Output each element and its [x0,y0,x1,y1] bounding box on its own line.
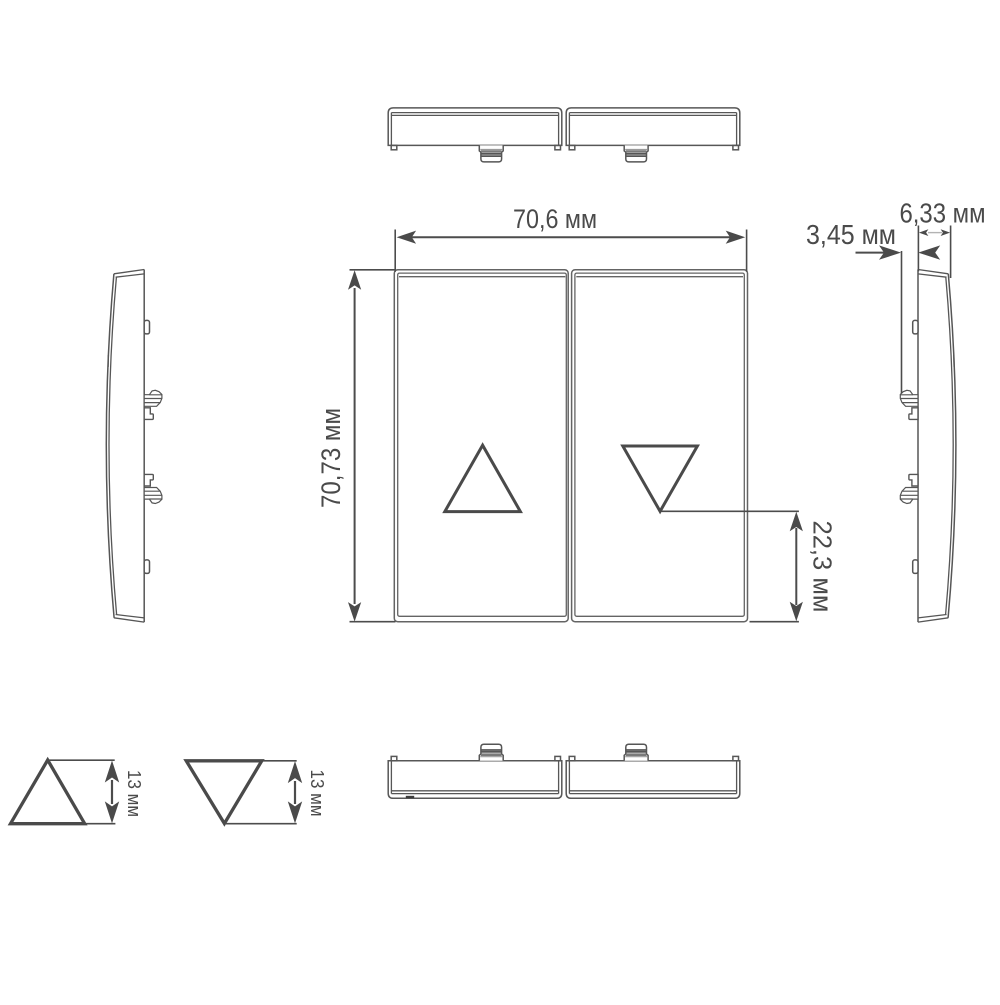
svg-text:13 мм: 13 мм [124,770,145,817]
svg-text:22,3 мм: 22,3 мм [807,521,835,613]
svg-text:6,33 мм: 6,33 мм [900,198,986,229]
svg-text:70,73 мм: 70,73 мм [316,408,346,508]
svg-text:3,45 мм: 3,45 мм [806,219,896,250]
svg-text:13 мм: 13 мм [307,770,328,817]
svg-text:70,6 мм: 70,6 мм [513,204,597,234]
